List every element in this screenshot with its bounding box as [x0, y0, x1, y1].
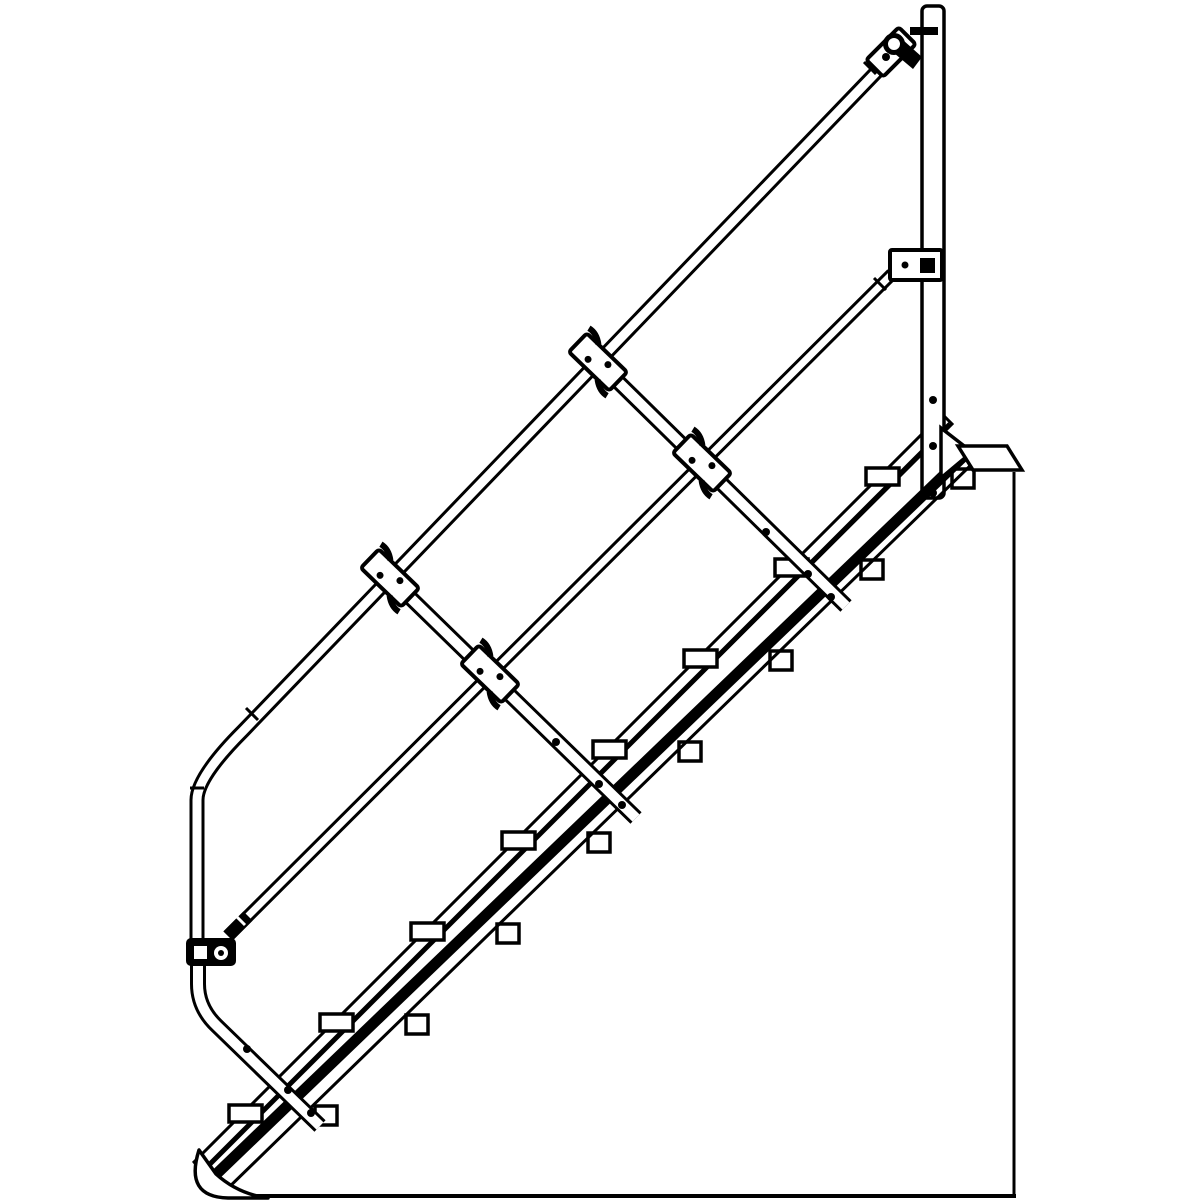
bolt — [243, 1045, 251, 1053]
tread-tab-left — [593, 741, 626, 758]
stair-technical-drawing — [0, 0, 1200, 1200]
tread-tab-left — [502, 832, 535, 849]
clamp-bolt-head — [886, 36, 903, 53]
stair-illustration-canvas — [0, 0, 1200, 1200]
clamp-fitting — [186, 938, 236, 966]
bolt — [929, 442, 937, 450]
bolt — [804, 570, 812, 578]
bolt — [827, 593, 835, 601]
tread-tab-right — [497, 924, 519, 943]
tread-tab-left — [229, 1105, 262, 1122]
near-stringer — [195, 452, 972, 1198]
bolt — [552, 738, 560, 746]
bolt — [762, 528, 770, 536]
bolt — [929, 396, 937, 404]
tread-tab-right — [770, 651, 792, 670]
tread-tab-right — [406, 1015, 428, 1034]
tread-tab-left — [411, 923, 444, 940]
bolt — [284, 1086, 292, 1094]
tread-tab-left — [684, 650, 717, 667]
bolt — [618, 801, 626, 809]
clamp-fittings — [186, 27, 942, 966]
balusters — [198, 362, 846, 1126]
bolt — [929, 489, 937, 497]
tread-tab-left — [320, 1014, 353, 1031]
bolt — [595, 780, 603, 788]
tread-tab-left — [866, 468, 899, 485]
far-stringer — [194, 414, 952, 1172]
bolt — [307, 1109, 315, 1117]
clamp-fitting — [890, 250, 942, 280]
bolt — [882, 53, 890, 61]
